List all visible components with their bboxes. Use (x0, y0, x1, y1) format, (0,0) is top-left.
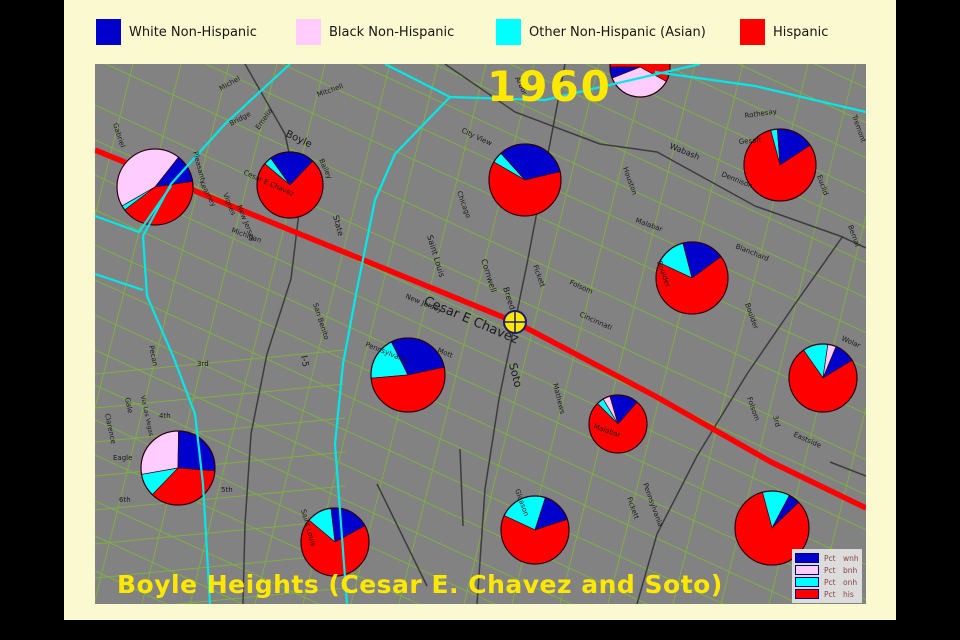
pie-chart (789, 344, 857, 412)
street-label: Malabar (634, 216, 663, 233)
street-label: San Benito (311, 302, 330, 341)
street-label: Fickett (625, 496, 640, 521)
street-label: Michel (218, 75, 242, 93)
street-label: City View (460, 127, 493, 148)
pie-chart (610, 64, 670, 97)
legend-label-wnh: White Non-Hispanic (129, 25, 257, 40)
legend-item-hispanic: Hispanic (740, 19, 828, 45)
legend-swatch-onh-icon (496, 19, 521, 45)
street-line (95, 418, 345, 442)
inset-legend-swatch-bnh-icon (795, 565, 819, 575)
legend-label-his: Hispanic (773, 25, 828, 40)
street-label: Boulder (743, 302, 760, 330)
map-canvas: MichelMitchellGabrielBridgeEmeliaBoyleBa… (95, 64, 866, 604)
map-year-label: 1960 (487, 66, 612, 108)
street-label: Houston (621, 166, 638, 196)
street-label: Cornwell (479, 258, 498, 294)
street-label: Pecan (147, 345, 159, 367)
street-label: 4th (159, 412, 171, 420)
freeway-line (655, 72, 866, 112)
street-line (351, 64, 486, 604)
freeway-line (143, 64, 290, 604)
inset-legend-field-name: bnh (843, 566, 857, 575)
slide-panel: White Non-Hispanic Black Non-Hispanic Ot… (64, 0, 896, 620)
legend-item-white-non-hispanic: White Non-Hispanic (96, 19, 257, 45)
inset-legend-field-name: his (843, 590, 854, 599)
legend-label-bnh: Black Non-Hispanic (329, 25, 454, 40)
demographic-map: MichelMitchellGabrielBridgeEmeliaBoyleBa… (95, 64, 866, 604)
legend-item-black-non-hispanic: Black Non-Hispanic (296, 19, 454, 45)
street-label: Eastside (792, 431, 822, 450)
street-label: Bernal (846, 224, 861, 248)
street-label: 6th (119, 496, 131, 504)
street-label: State (331, 214, 345, 237)
inset-legend-row: Pctonh (795, 576, 859, 588)
inset-legend-field-name: onh (843, 578, 857, 587)
inset-legend-row: Pctwnh (795, 552, 859, 564)
street-line (142, 64, 277, 604)
inset-legend-field-name: wnh (843, 554, 859, 563)
street-label: Soto (506, 362, 525, 389)
pie-chart (501, 496, 569, 564)
inset-legend-prefix: Pct (824, 566, 839, 575)
street-label: Cincinnati (578, 311, 613, 333)
freeway-line (95, 274, 143, 290)
intersection-marker (504, 311, 526, 333)
street-label: Rothesay (744, 108, 777, 120)
street-label: Folsom (745, 396, 761, 422)
street-line (95, 486, 345, 510)
inset-legend-prefix: Pct (824, 590, 839, 599)
street-line (95, 452, 345, 476)
dark-road-line (243, 64, 300, 604)
street-label: Fickett (531, 264, 546, 289)
street-label: Gale (123, 397, 134, 414)
pie-chart (489, 144, 561, 216)
map-caption: Boyle Heights (Cesar E. Chavez and Soto) (117, 570, 723, 599)
inset-legend-row: Pcthis (795, 588, 859, 600)
street-label: Breed (501, 286, 517, 311)
inset-legend-prefix: Pct (824, 554, 839, 563)
street-label: Emelia (254, 107, 274, 131)
street-label: Gabriel (111, 122, 126, 149)
street-label: Saint Louis (425, 234, 446, 278)
street-label: Mathews (551, 383, 566, 416)
inset-legend-prefix: Pct (824, 578, 839, 587)
street-line (817, 64, 866, 604)
dark-road-line (830, 462, 866, 476)
street-label: Eagle (113, 454, 132, 462)
inset-legend-swatch-his-icon (795, 589, 819, 599)
street-label: Folsom (568, 279, 594, 296)
legend-swatch-wnh-icon (96, 19, 121, 45)
street-label: 3rd (771, 415, 782, 428)
street-label: Clarence (103, 413, 117, 445)
inset-legend-swatch-wnh-icon (795, 553, 819, 563)
street-label: I-5 (298, 355, 310, 368)
legend-swatch-his-icon (740, 19, 765, 45)
pie-slice-wnh (178, 431, 215, 471)
legend-label-onh: Other Non-Hispanic (Asian) (529, 25, 706, 40)
inset-legend-row: Pctbnh (795, 564, 859, 576)
street-label: 5th (221, 486, 233, 494)
street-label: 3rd (197, 360, 209, 368)
street-label: Wolar (840, 335, 862, 350)
map-inset-legend: PctwnhPctbnhPctonhPcthis (792, 549, 862, 603)
street-label: Chicago (455, 190, 472, 219)
dark-road-line (460, 449, 463, 526)
inset-legend-swatch-onh-icon (795, 577, 819, 587)
street-label: Tremont (850, 113, 866, 144)
legend-item-other-non-hispanic: Other Non-Hispanic (Asian) (496, 19, 706, 45)
street-label: Bridge (228, 110, 252, 128)
legend-swatch-bnh-icon (296, 19, 321, 45)
street-line (95, 64, 181, 604)
